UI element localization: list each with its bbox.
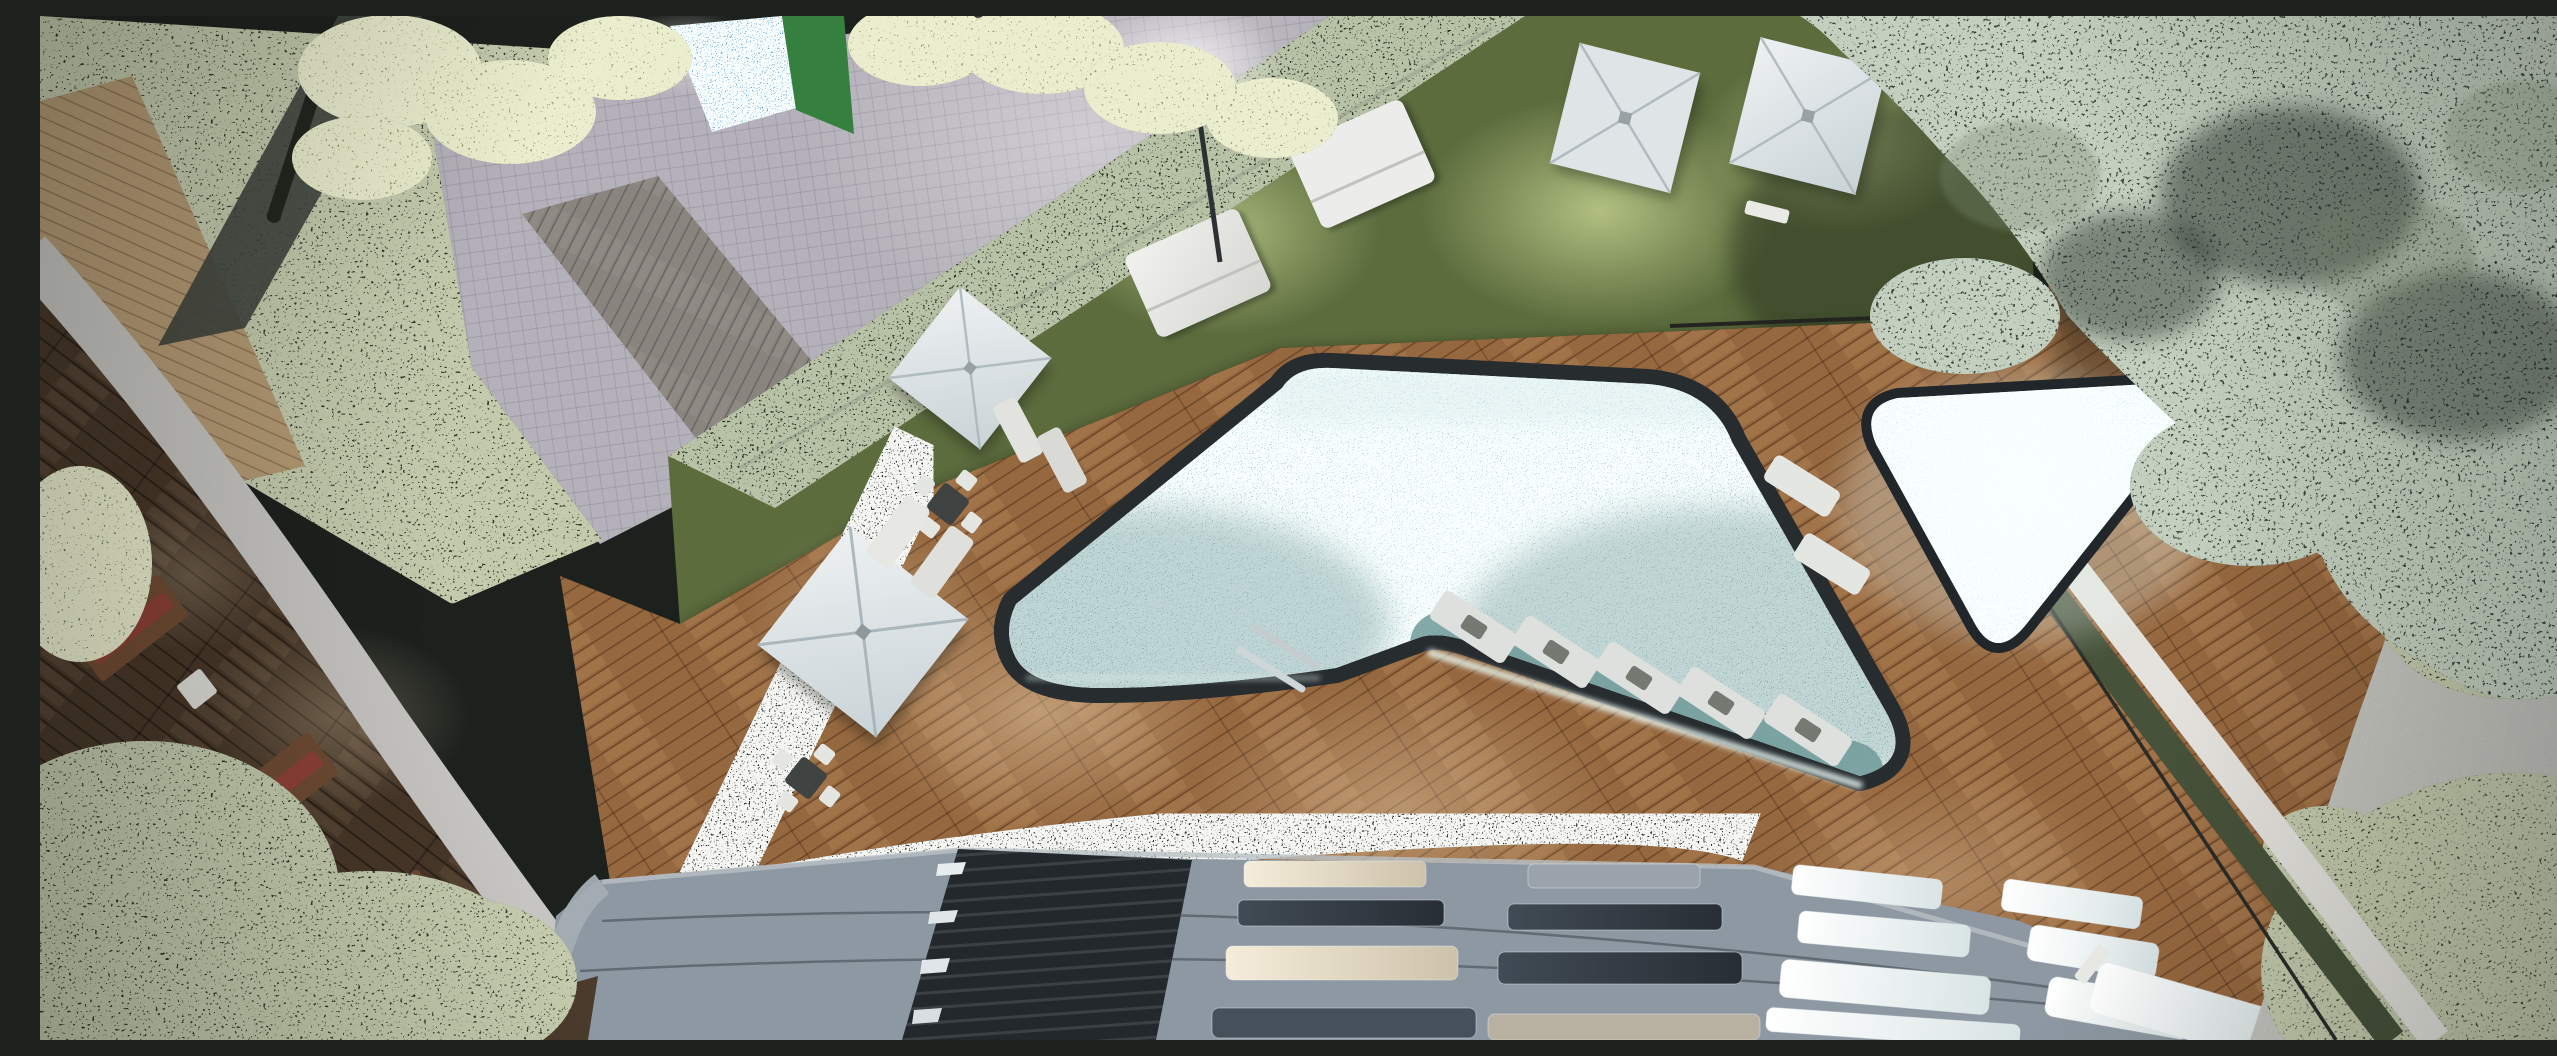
- edge-vignette: [40, 16, 2557, 1040]
- render-canvas: [40, 16, 2557, 1040]
- aerial-pool-render: [40, 16, 2557, 1040]
